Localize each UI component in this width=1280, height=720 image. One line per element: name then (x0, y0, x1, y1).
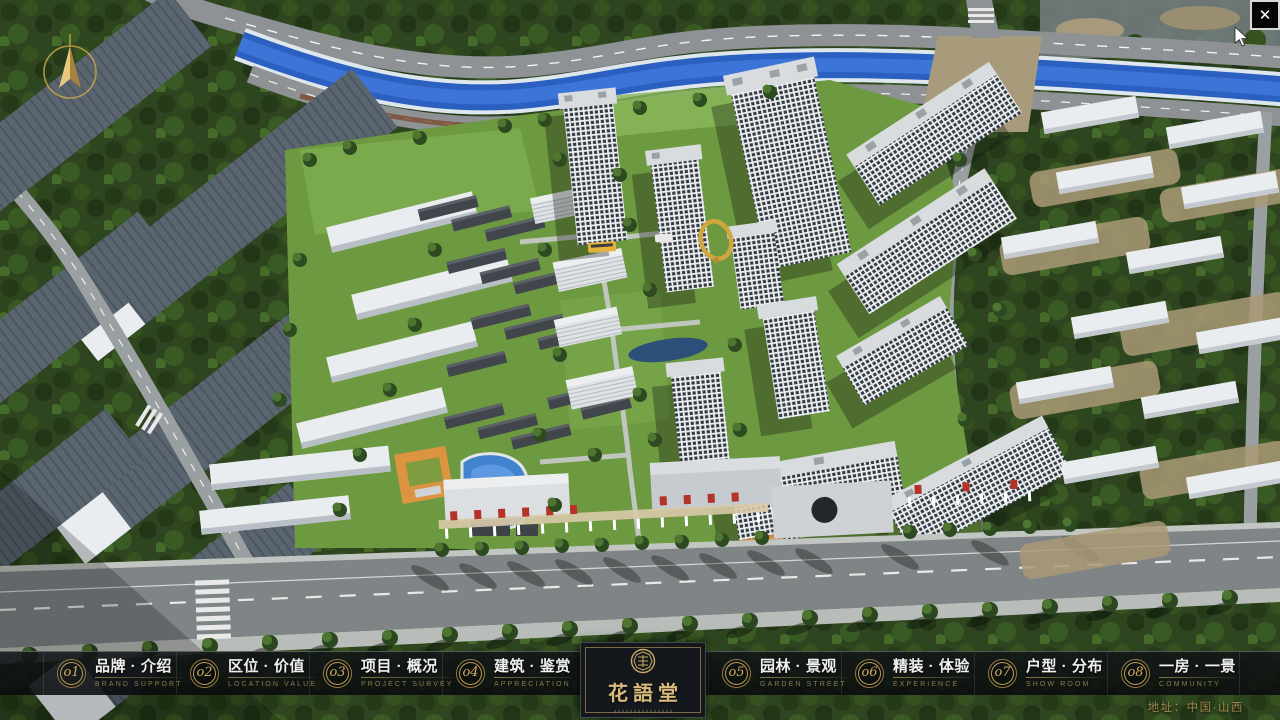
nav-item-title: 建筑 · 鉴赏 (494, 659, 571, 674)
nav-item-title: 项目 · 概况 (361, 659, 454, 674)
nav-item-title: 品牌 · 介绍 (95, 659, 182, 674)
nav-number-badge: o3 (323, 659, 352, 688)
nav-item-garden[interactable]: o5 园林 · 景观 GARDEN STREET (708, 652, 841, 695)
close-button[interactable]: ✕ (1250, 0, 1280, 30)
nav-item-title: 户型 · 分布 (1026, 659, 1103, 674)
brand-logo-panel[interactable]: 花語堂 (580, 642, 706, 718)
nav-number-badge: o5 (722, 659, 751, 688)
nav-item-subtitle: APPRECIATION (494, 681, 571, 688)
mouse-cursor (1234, 27, 1252, 49)
nav-item-title: 精装 · 体验 (893, 659, 970, 674)
nav-item-architecture[interactable]: o4 建筑 · 鉴赏 APPRECIATION (442, 652, 575, 695)
nav-number-badge: o6 (855, 659, 884, 688)
nav-number-badge: o4 (456, 659, 485, 688)
nav-item-subtitle: LOCATION VALUE (228, 681, 317, 688)
logo-seal-icon (630, 648, 656, 674)
divider (893, 677, 970, 678)
map-viewport[interactable] (0, 0, 1280, 720)
nav-item-subtitle: PROJECT SURVEY (361, 681, 454, 688)
nav-item-subtitle: GARDEN STREET (760, 681, 847, 688)
divider (95, 677, 182, 678)
nav-item-community[interactable]: o8 一房 · 一景 COMMUNITY (1107, 652, 1240, 695)
nav-item-location[interactable]: o2 区位 · 价值 LOCATION VALUE (176, 652, 309, 695)
nav-item-title: 区位 · 价值 (228, 659, 317, 674)
divider (494, 677, 571, 678)
nav-item-floorplan[interactable]: o7 户型 · 分布 SHOW ROOM (974, 652, 1107, 695)
nav-item-title: 一房 · 一景 (1159, 659, 1236, 674)
nav-item-subtitle: COMMUNITY (1159, 681, 1236, 688)
nav-number-badge: o2 (190, 659, 219, 688)
divider (760, 677, 847, 678)
divider (361, 677, 454, 678)
divider (228, 677, 317, 678)
nav-item-subtitle: BRAND SUPPORT (95, 681, 182, 688)
nav-item-project[interactable]: o3 项目 · 概况 PROJECT SURVEY (309, 652, 442, 695)
brand-name: 花語堂 (603, 677, 683, 706)
presentation-window: ✕ o1 品牌 · 介绍 BRAND SUPPORT o2 区位 · 价值 LO… (0, 0, 1280, 720)
nav-item-experience[interactable]: o6 精装 · 体验 EXPERIENCE (841, 652, 974, 695)
nav-item-subtitle: EXPERIENCE (893, 681, 970, 688)
nav-item-title: 园林 · 景观 (760, 659, 847, 674)
nav-number-badge: o7 (988, 659, 1017, 688)
nav-item-subtitle: SHOW ROOM (1026, 681, 1103, 688)
divider (1159, 677, 1236, 678)
brand-tagline-rule (614, 710, 672, 713)
compass-icon (34, 32, 106, 110)
nav-item-brand[interactable]: o1 品牌 · 介绍 BRAND SUPPORT (43, 652, 176, 695)
nav-number-badge: o8 (1121, 659, 1150, 688)
divider (1026, 677, 1103, 678)
nav-number-badge: o1 (57, 659, 86, 688)
project-address: 地址：中国·山西 (1148, 699, 1244, 715)
